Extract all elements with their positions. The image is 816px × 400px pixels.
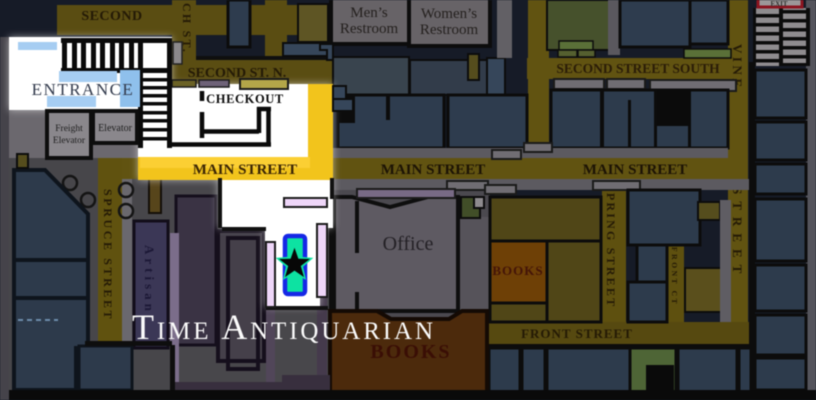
svg-text:SPRUCE STREET: SPRUCE STREET bbox=[101, 189, 115, 321]
svg-text:Elevator: Elevator bbox=[98, 123, 133, 134]
svg-text:SECOND: SECOND bbox=[81, 9, 142, 24]
svg-text:Restroom: Restroom bbox=[340, 21, 399, 37]
svg-text:SECOND STREET SOUTH: SECOND STREET SOUTH bbox=[556, 61, 720, 76]
svg-text:Freight: Freight bbox=[55, 124, 83, 134]
svg-text:MAIN STREET: MAIN STREET bbox=[193, 162, 298, 178]
svg-text:Artisan: Artisan bbox=[142, 245, 157, 315]
svg-text:Men’s: Men’s bbox=[350, 5, 388, 21]
svg-text:FRONT STREET: FRONT STREET bbox=[521, 326, 633, 341]
svg-text:Elevator: Elevator bbox=[53, 136, 86, 146]
svg-text:CHECKOUT: CHECKOUT bbox=[206, 92, 284, 106]
svg-text:BOOKS: BOOKS bbox=[492, 263, 543, 278]
svg-text:Women’s: Women’s bbox=[421, 6, 477, 22]
svg-text:MAIN STREET: MAIN STREET bbox=[583, 162, 688, 178]
svg-text:SPRING STREET: SPRING STREET bbox=[604, 184, 618, 308]
svg-text:Restroom: Restroom bbox=[420, 22, 479, 38]
svg-text:STREET: STREET bbox=[730, 187, 745, 280]
svg-text:FRONT CT: FRONT CT bbox=[670, 247, 679, 306]
svg-text:BOOKS: BOOKS bbox=[370, 341, 451, 363]
svg-text:ENTRANCE: ENTRANCE bbox=[32, 80, 135, 99]
svg-text:MAIN STREET: MAIN STREET bbox=[381, 162, 486, 178]
svg-text:Office: Office bbox=[383, 233, 434, 255]
svg-text:EXIT: EXIT bbox=[770, 0, 787, 8]
